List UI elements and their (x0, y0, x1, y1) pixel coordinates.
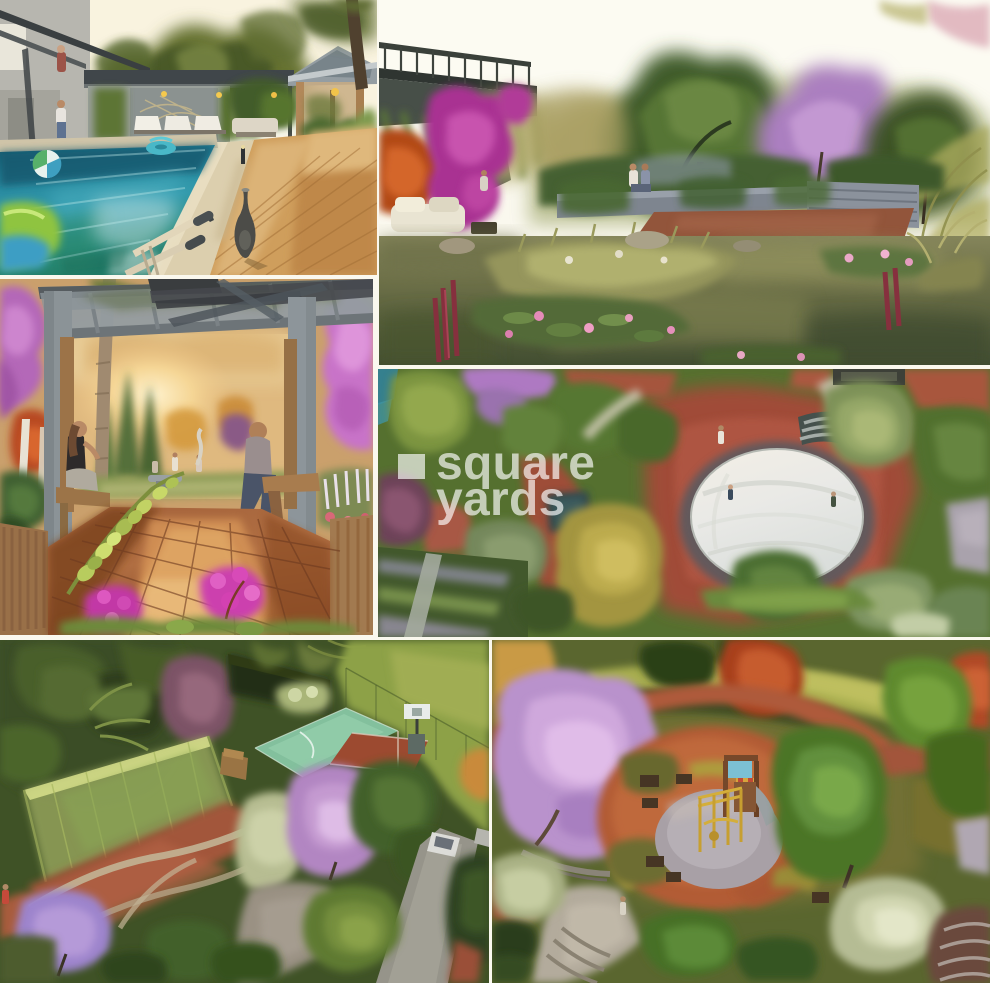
svg-text:yards: yards (436, 473, 566, 526)
